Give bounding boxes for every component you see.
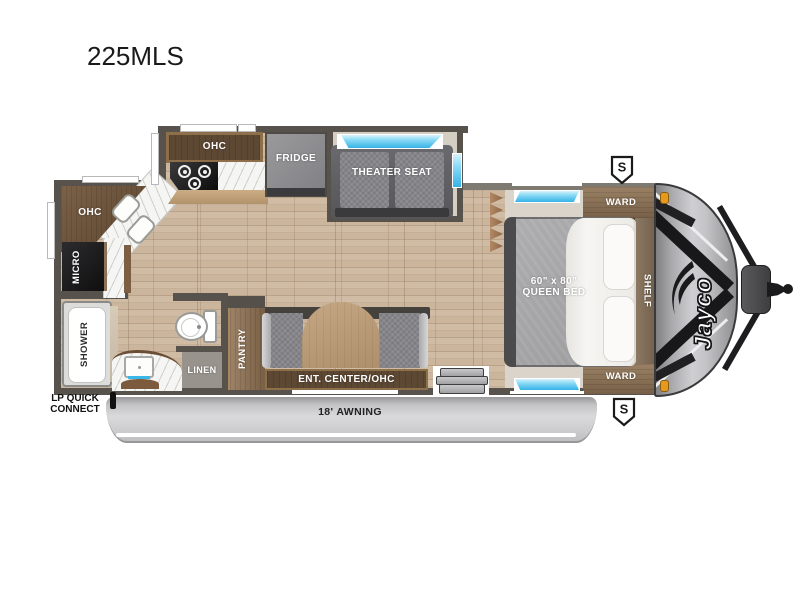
bedroom-ladder-decor: [490, 192, 503, 252]
shower-label: SHOWER: [80, 313, 90, 375]
window-below-ent: [292, 390, 398, 394]
vanity-sink: [124, 356, 154, 378]
window-step-wall: [151, 133, 159, 185]
dinette-table-arch: [302, 302, 380, 368]
kitchen-counter-front: [168, 189, 268, 204]
awning-roller-strip: [116, 433, 576, 437]
window-galley-top-2: [238, 124, 256, 132]
theater-seat-cushion: [340, 152, 389, 208]
ladder-rung-icon: [490, 228, 503, 240]
sink-drain-dot: [138, 366, 141, 369]
window-glass: [338, 135, 442, 148]
toilet-flush-dot: [197, 325, 201, 329]
theater-seat: [331, 145, 453, 219]
wardrobe-top-label: WARD: [583, 198, 659, 208]
bed-type-text: QUEEN BED: [522, 287, 585, 298]
bed-pillow: [603, 296, 635, 362]
burner-icon: [188, 177, 201, 190]
propane-tank-cover: [741, 265, 771, 314]
jayco-logo: Jayco: [690, 235, 718, 350]
pantry-label: PANTRY: [238, 318, 248, 380]
speaker-icon: S: [612, 397, 636, 427]
microwave: [62, 242, 107, 291]
hitch-ball: [783, 284, 793, 294]
speaker-letter: S: [618, 160, 627, 175]
window-bedroom-top: [514, 190, 580, 203]
theater-slide-side-window: [452, 153, 462, 188]
window-galley-top-1: [180, 124, 237, 132]
speaker-letter: S: [620, 402, 629, 417]
entry-steps: [433, 366, 489, 395]
step-tread: [439, 384, 485, 394]
vanity-base: [121, 379, 159, 389]
shelf-label: SHELF: [641, 253, 651, 329]
theater-seat-label: THEATER SEAT: [331, 167, 453, 178]
bed-label: 60" x 80" QUEEN BED: [504, 276, 604, 298]
pantry-cap: [228, 296, 265, 308]
lp-label-line2: CONNECT: [50, 404, 99, 415]
burner-icon: [178, 165, 191, 178]
awning-label: 18' AWNING: [250, 406, 450, 418]
wall-rear-left: [54, 180, 61, 395]
dinette-seat-cap-right: [419, 313, 428, 368]
theater-slide-window: [337, 134, 443, 149]
window-bedroom-top-sill: [512, 181, 582, 186]
theater-seat-cushion: [395, 152, 444, 208]
window-bedroom-bottom-sill: [510, 391, 584, 394]
dinette-seat-left: [270, 313, 303, 368]
lp-connect-marker: [110, 392, 116, 409]
ladder-rung-icon: [490, 240, 503, 252]
microwave-label: MICRO: [72, 247, 82, 287]
lp-label-line1: LP QUICK: [51, 393, 99, 404]
lp-quick-connect-label: LP QUICK CONNECT: [42, 393, 108, 415]
vanity-faucet: [128, 376, 150, 379]
burner-icon: [198, 165, 211, 178]
window-glass: [515, 379, 579, 390]
kitchen-counter: [216, 162, 266, 190]
dinette-seat-right: [379, 313, 420, 368]
wall-bath-top-right: [173, 293, 228, 301]
kitchen-ohc-label: OHC: [166, 141, 263, 152]
theater-seat-base: [335, 208, 449, 217]
bed-pillow: [603, 224, 635, 290]
ladder-rung-icon: [490, 192, 503, 204]
fridge-base: [267, 188, 325, 196]
bed-size-text: 60" x 80": [531, 276, 577, 287]
page-title: 225MLS: [87, 41, 184, 72]
corner-counter-trim: [124, 245, 131, 293]
clearance-light-bottom: [660, 380, 669, 392]
ent-center-label: ENT. CENTER/OHC: [265, 374, 428, 385]
clearance-light-top: [660, 192, 669, 204]
speaker-icon: S: [610, 155, 634, 185]
fridge-label: FRIDGE: [265, 153, 327, 164]
window-rear-top: [82, 176, 139, 183]
window-glass: [515, 191, 579, 202]
window-bedroom-bottom: [514, 378, 580, 391]
dinette-seat-cap-left: [262, 313, 271, 368]
corner-ohc-label: OHC: [70, 207, 110, 218]
wall-bath-right: [221, 293, 228, 393]
awning: [106, 397, 597, 443]
stove: [170, 162, 218, 190]
ladder-rung-icon: [490, 204, 503, 216]
ladder-rung-icon: [490, 216, 503, 228]
toilet-bowl: [175, 312, 208, 341]
window-left-wall: [47, 202, 55, 259]
linen-label: LINEN: [180, 366, 224, 376]
wardrobe-bottom-label: WARD: [583, 372, 659, 382]
floorplan-canvas: 225MLS OHC MICRO OHC FRIDGE: [0, 0, 800, 600]
